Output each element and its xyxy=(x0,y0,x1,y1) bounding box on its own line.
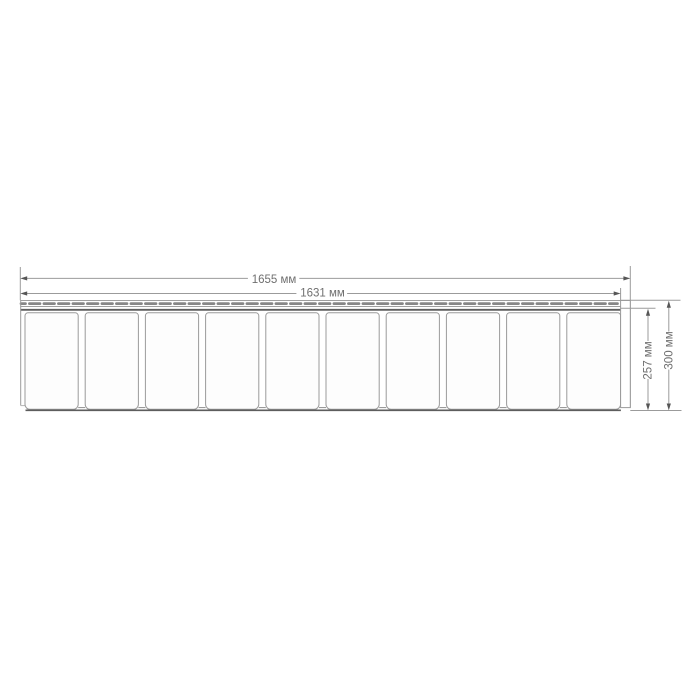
svg-text:1631 мм: 1631 мм xyxy=(300,288,345,300)
svg-text:257 мм: 257 мм xyxy=(643,341,655,379)
svg-text:1655 мм: 1655 мм xyxy=(252,274,297,286)
svg-text:300 мм: 300 мм xyxy=(663,331,675,369)
